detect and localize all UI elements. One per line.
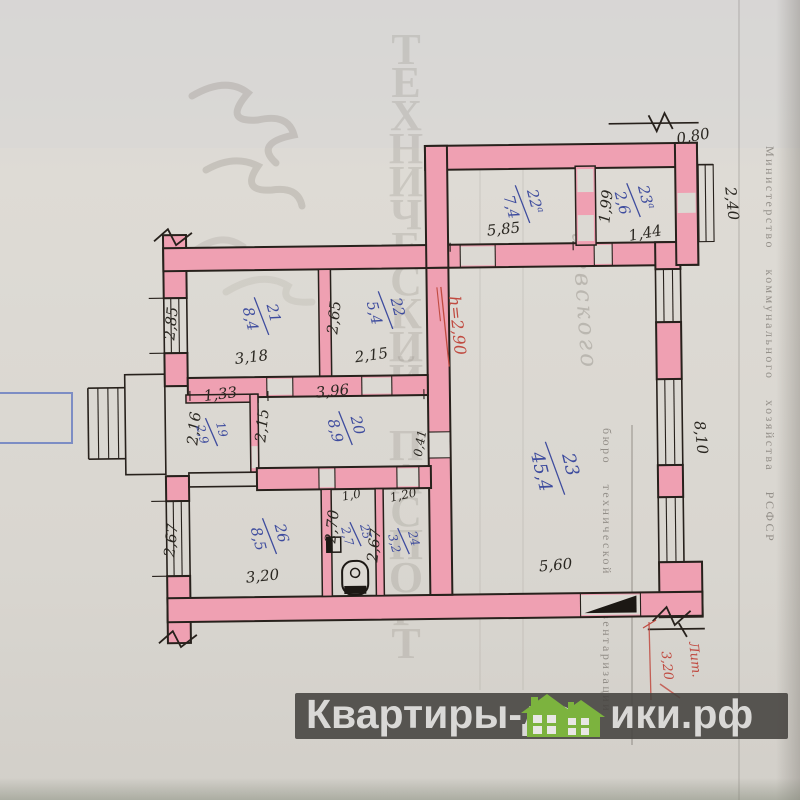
dim-corridor-width: 3,96: [315, 380, 351, 401]
dim-left-upper: 2,85: [160, 306, 181, 342]
dim-corridor-left: 2,15: [251, 408, 272, 444]
dim-top-room-width: 5,85: [486, 218, 521, 239]
toilet-icon: [342, 561, 368, 595]
brand-text-right: ики.рф: [610, 691, 753, 737]
dim-r22-left: 2,65: [323, 300, 344, 336]
dim-r25-depth: 2,70: [321, 508, 343, 545]
margin-note-ministry: Министерство коммунального хозяйства РСФ…: [763, 146, 777, 543]
margin-note-bti: бюро технической инвентаризации: [600, 428, 614, 713]
dim-r26-width: 3,20: [245, 565, 281, 586]
dim-hall-width: 5,60: [538, 555, 573, 576]
dim-balcony-length: 2,40: [721, 185, 743, 222]
dim-left-lower: 2,67: [160, 522, 182, 559]
ghost-title-watermark: ТЕХНИЧЕСКИЙ ПАСПОРТ: [389, 25, 423, 668]
footer-watermark: Квартиры-до ики.рф: [295, 691, 788, 739]
floor-plan-canvas: ТЕХНИЧЕСКИЙ ПАСПОРТ шевского Министерств…: [0, 0, 800, 800]
edge-shade-right: [776, 0, 800, 800]
edge-shade-bottom: [0, 778, 800, 800]
red-length: 3,20: [658, 650, 676, 680]
dim-hall-depth: 8,10: [690, 420, 711, 456]
wall-bottom-outer: [167, 592, 702, 623]
scanned-floor-plan-photo: ТЕХНИЧЕСКИЙ ПАСПОРТ шевского Министерств…: [0, 0, 800, 800]
